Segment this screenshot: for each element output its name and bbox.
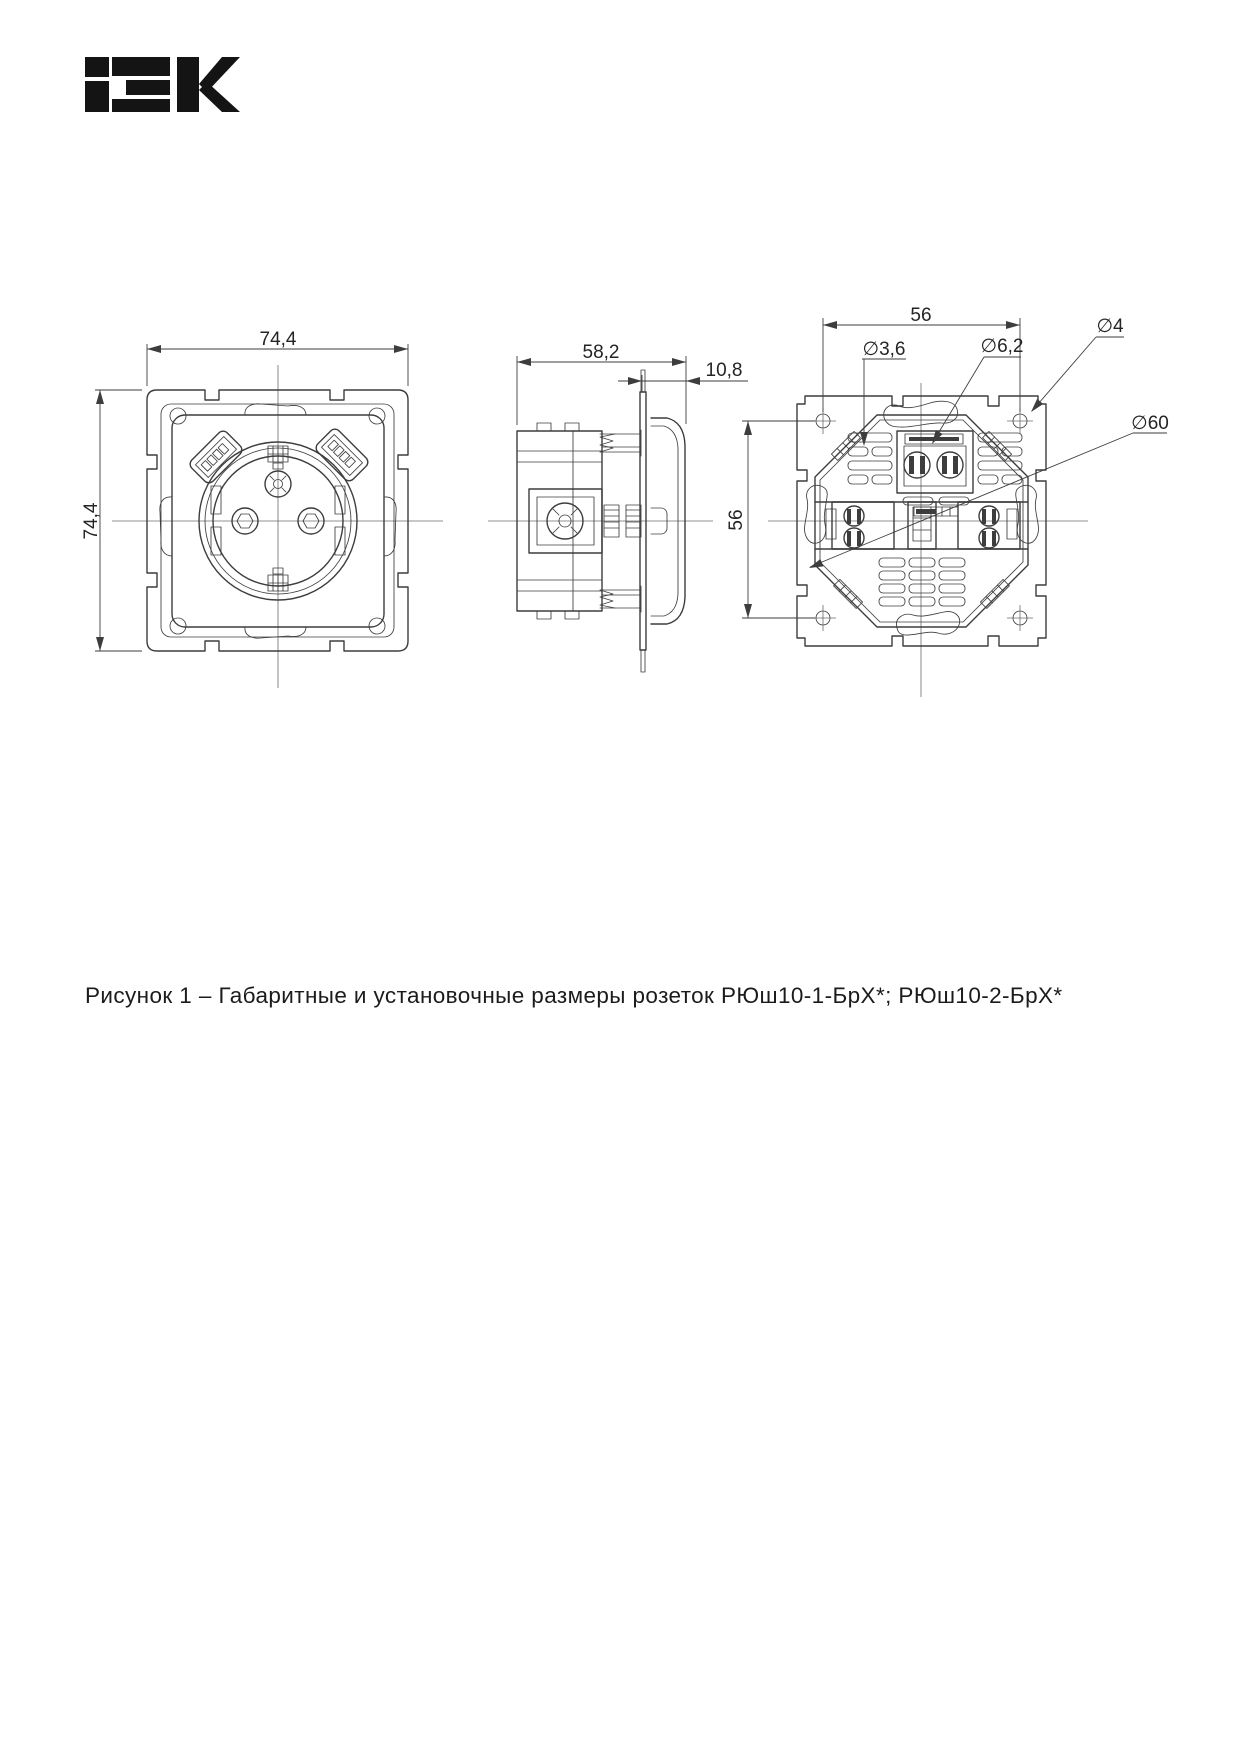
terminal-screw-dia-label: ∅6,2	[981, 336, 1024, 357]
logo-letter-i-dot	[85, 57, 109, 77]
claw-hole-dia-label: ∅3,6	[863, 339, 906, 360]
back-kidney-left	[805, 485, 828, 543]
side-cover-thickness-label: 10,8	[706, 360, 743, 381]
logo-letter-e-bottom	[112, 99, 170, 112]
bevel-claw	[980, 579, 1009, 608]
dim-side-cover-thickness: 10,8	[618, 360, 748, 392]
front-kidney-top	[245, 404, 306, 415]
logo-letter-i-stem	[85, 81, 109, 112]
side-support-plate-tab	[641, 650, 645, 672]
technical-drawing: 74,4 74,4	[0, 0, 1244, 1748]
side-depth-label: 58,2	[583, 342, 620, 363]
logo-letter-k-lower-arm	[199, 82, 240, 112]
back-kidney-right	[1016, 485, 1039, 543]
vent-slots-lower	[879, 558, 965, 606]
logo-letter-k-stem	[177, 57, 199, 112]
mounting-hole	[1007, 605, 1033, 631]
logo-letter-e-top	[112, 57, 170, 76]
front-corner-hole	[170, 618, 186, 634]
side-body-tab	[537, 423, 551, 431]
iek-logo	[85, 57, 240, 112]
side-claw-top	[600, 430, 641, 456]
bevel-claw	[834, 579, 863, 608]
leader-claw-hole-dia: ∅3,6	[860, 339, 906, 446]
dim-back-hole-spacing-v: 56	[726, 421, 815, 618]
front-width-label: 74,4	[260, 329, 297, 350]
leader-mounting-hole-dia: ∅4	[1028, 316, 1124, 415]
side-view: 58,2 10,8	[488, 342, 748, 672]
front-height-label: 74,4	[81, 502, 102, 539]
logo-letter-e-mid	[126, 80, 170, 95]
side-body-tab	[537, 611, 551, 619]
front-kidney-left	[160, 497, 172, 556]
mounting-hole-dia-label: ∅4	[1096, 316, 1124, 337]
dim-front-height: 74,4	[81, 390, 142, 651]
page: 74,4 74,4	[0, 0, 1244, 1748]
back-view: 56 56 ∅3,6 ∅6,2 ∅	[726, 305, 1169, 697]
side-body-tab	[565, 423, 579, 431]
body-dia-label: ∅60	[1131, 413, 1169, 434]
dim-side-depth: 58,2	[517, 342, 686, 425]
figure-caption: Рисунок 1 – Габаритные и установочные ра…	[85, 983, 1063, 1008]
front-support-frame	[147, 390, 408, 651]
front-corner-hole	[170, 408, 186, 424]
back-hole-spacing-h-label: 56	[910, 305, 931, 326]
usb-port-left	[188, 429, 245, 486]
side-body-tab	[565, 611, 579, 619]
dim-front-width: 74,4	[147, 329, 408, 386]
front-view: 74,4 74,4	[81, 329, 443, 688]
leader-terminal-screw-dia: ∅6,2	[929, 336, 1024, 446]
side-claw-bottom	[600, 586, 641, 612]
front-kidney-bottom	[245, 627, 306, 638]
front-frame-opening	[161, 404, 394, 637]
back-hole-spacing-v-label: 56	[726, 509, 747, 530]
back-kidney-bottom	[896, 612, 959, 635]
